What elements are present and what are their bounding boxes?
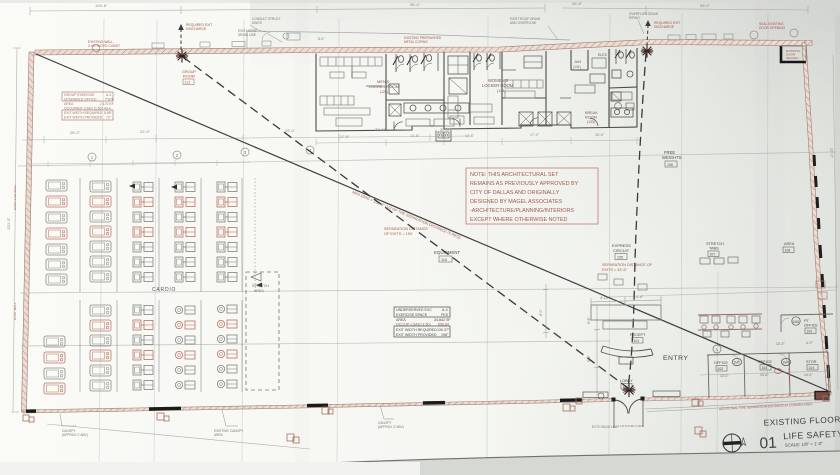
svg-text:1M6: 1M6 <box>793 320 800 324</box>
svg-text:NOTE: THIS ARCHITECTURAL SET: NOTE: THIS ARCHITECTURAL SET <box>470 172 559 178</box>
svg-text:107: 107 <box>710 253 716 257</box>
svg-text:1M2: 1M2 <box>734 361 740 365</box>
svg-text:FED: FED <box>441 313 449 317</box>
svg-text:EXIT WIDTH REQUIRED: EXIT WIDTH REQUIRED <box>396 328 437 332</box>
svg-text:SEPARATION DISTANCE: SEPARATION DISTANCE <box>384 227 428 231</box>
svg-text:17'-2": 17'-2" <box>530 133 540 137</box>
svg-text:AREA: AREA <box>64 102 74 106</box>
svg-text:EXERCISE SPACE: EXERCISE SPACE <box>396 313 428 317</box>
svg-text:DISCHARGE: DISCHARGE <box>186 27 207 31</box>
svg-text:1M4: 1M4 <box>783 361 789 365</box>
svg-text:102: 102 <box>718 367 724 371</box>
svg-text:8'-0": 8'-0" <box>318 37 324 41</box>
svg-text:101: 101 <box>634 339 640 343</box>
svg-text:EXITS = 43'-6": EXITS = 43'-6" <box>602 268 628 272</box>
svg-text:OFFICE: OFFICE <box>758 360 772 364</box>
svg-text:DWGS: DWGS <box>252 21 262 25</box>
svg-text:RECEPT: RECEPT <box>630 333 646 337</box>
svg-text:120'-0": 120'-0" <box>6 217 11 230</box>
svg-text:104'-8": 104'-8" <box>95 3 108 8</box>
svg-text:AREA: AREA <box>784 242 795 246</box>
svg-text:OCCUP. LOAD (1:50): OCCUP. LOAD (1:50) <box>396 323 431 327</box>
svg-text:(120): (120) <box>380 90 388 94</box>
svg-text:STOR: STOR <box>806 360 817 364</box>
svg-text:4'-2": 4'-2" <box>806 341 814 345</box>
svg-text:A-3: A-3 <box>442 308 448 312</box>
svg-text:139.37": 139.37" <box>437 328 450 332</box>
svg-text:26'-0": 26'-0" <box>70 130 81 135</box>
svg-text:22'-0": 22'-0" <box>140 129 151 134</box>
svg-text:25'-0": 25'-0" <box>285 128 296 133</box>
svg-text:01: 01 <box>759 435 777 453</box>
svg-text:LOCKER ROOM: LOCKER ROOM <box>482 83 514 88</box>
svg-text:13'-6": 13'-6" <box>760 373 769 377</box>
svg-text:110: 110 <box>441 258 447 262</box>
svg-text:LOCKER ROOM: LOCKER ROOM <box>369 84 399 89</box>
svg-text:TYPE: TYPE <box>105 98 115 102</box>
svg-text:(APPROX 2' ABV): (APPROX 2' ABV) <box>378 425 404 429</box>
svg-text:DISCHARGE: DISCHARGE <box>654 25 675 29</box>
svg-text:STRETCH: STRETCH <box>252 284 269 288</box>
svg-text:OF EXITS = 150': OF EXITS = 150' <box>384 232 413 236</box>
svg-text:105: 105 <box>617 255 623 259</box>
svg-text:CARDIO: CARDIO <box>152 287 176 293</box>
svg-text:100: 100 <box>623 385 629 389</box>
svg-text:EXIST WALL: EXIST WALL <box>13 302 17 320</box>
svg-text:PIPING: PIPING <box>629 16 640 20</box>
svg-text:AREA: AREA <box>254 289 264 293</box>
svg-text:104: 104 <box>809 366 815 370</box>
svg-text:OCCUPANT LOAD (1:50): OCCUPANT LOAD (1:50) <box>64 107 103 111</box>
svg-text:14'-0": 14'-0" <box>804 373 813 377</box>
svg-text:METAL COPING: METAL COPING <box>404 40 428 44</box>
svg-text:DOOR OPENING: DOOR OPENING <box>759 26 785 30</box>
svg-text:ROOM: ROOM <box>585 116 597 120</box>
svg-text:5'-2": 5'-2" <box>587 354 591 362</box>
svg-text:109: 109 <box>807 330 813 334</box>
svg-text:PT: PT <box>804 319 810 323</box>
svg-text:16'-6": 16'-6" <box>595 133 605 137</box>
svg-text:58'-0": 58'-0" <box>700 3 711 8</box>
svg-text:AND OVERFLOW: AND OVERFLOW <box>510 21 536 25</box>
svg-text:34,842 SF: 34,842 SF <box>434 318 451 322</box>
svg-text:CITY OF DALLAS AND ORIGINALLY: CITY OF DALLAS AND ORIGINALLY <box>470 190 560 196</box>
svg-text:-ARCHITECTURE/PLANNING/INTERIO: -ARCHITECTURE/PLANNING/INTERIORS <box>470 208 574 214</box>
svg-text:TABS: TABS <box>709 247 719 251</box>
svg-text:LOBBY: LOBBY <box>620 379 633 383</box>
svg-text:8.68": 8.68" <box>104 111 113 115</box>
svg-text:1-HR RATED CORR: 1-HR RATED CORR <box>618 424 644 428</box>
svg-text:9'-6": 9'-6" <box>587 316 591 324</box>
svg-text:GROUP: GROUP <box>182 70 196 74</box>
svg-text:103: 103 <box>762 366 768 370</box>
svg-text:22'-6": 22'-6" <box>375 127 386 132</box>
svg-text:OFFICE: OFFICE <box>714 361 728 365</box>
svg-text:WEIGHTS: WEIGHTS <box>662 155 682 160</box>
svg-text:UNDERSERVED EXC: UNDERSERVED EXC <box>396 308 432 312</box>
svg-text:(APPROX 2' ABV): (APPROX 2' ABV) <box>62 433 88 437</box>
svg-text:ELEC: ELEC <box>598 53 608 57</box>
svg-text:108: 108 <box>785 249 791 253</box>
svg-text:EXCEPT WHERE OTHERWISE NOTED: EXCEPT WHERE OTHERWISE NOTED <box>470 217 568 223</box>
svg-text:EXIT WIDTH PROVIDED: EXIT WIDTH PROVIDED <box>64 116 103 120</box>
svg-text:SEPARATION DISTANCE OF: SEPARATION DISTANCE OF <box>602 263 653 267</box>
svg-text:EXIT WIDTH REQUIRED: EXIT WIDTH REQUIRED <box>64 111 103 115</box>
svg-text:20'-0": 20'-0" <box>829 148 835 159</box>
svg-text:AREA: AREA <box>214 433 224 437</box>
svg-text:26'-8": 26'-8" <box>572 1 583 6</box>
svg-text:ENTRY: ENTRY <box>663 355 688 362</box>
svg-text:96'-4": 96'-4" <box>410 2 421 7</box>
svg-text:UPGRADED OFFICE: UPGRADED OFFICE <box>64 98 97 102</box>
svg-text:1'-4": 1'-4" <box>636 295 644 299</box>
svg-text:20'-0": 20'-0" <box>440 127 451 132</box>
svg-text:AREA: AREA <box>396 318 406 322</box>
svg-text:72": 72" <box>106 116 112 120</box>
svg-text:10'-2": 10'-2" <box>776 342 785 346</box>
svg-text:43.4: 43.4 <box>104 107 111 111</box>
svg-text:DESIGNED BY MAGEL ASSOCIATES: DESIGNED BY MAGEL ASSOCIATES <box>470 199 563 205</box>
svg-text:696.84: 696.84 <box>438 323 449 327</box>
svg-text:REMAINS AS PREVIOUSLY APPROVED: REMAINS AS PREVIOUSLY APPROVED BY <box>470 181 579 187</box>
svg-text:6'-0": 6'-0" <box>539 308 543 316</box>
svg-text:106: 106 <box>667 163 673 167</box>
svg-text:4'-10": 4'-10" <box>600 296 610 300</box>
svg-text:ROOM: ROOM <box>183 75 195 79</box>
svg-text:EXIST 2-HR WALL: EXIST 2-HR WALL <box>13 184 17 210</box>
svg-text:(131): (131) <box>573 65 581 69</box>
svg-text:OFFICE: OFFICE <box>804 324 818 328</box>
svg-text:A-3: A-3 <box>106 93 111 97</box>
svg-text:13'-2": 13'-2" <box>720 374 729 378</box>
svg-text:EXIT WIDTH PROVIDED: EXIT WIDTH PROVIDED <box>396 333 437 337</box>
svg-text:113: 113 <box>185 81 191 85</box>
svg-text:EXTG BLDG LINE: EXTG BLDG LINE <box>592 425 618 429</box>
svg-text:14'-6": 14'-6" <box>410 134 420 138</box>
svg-text:GROUP EXERCISE: GROUP EXERCISE <box>64 93 95 97</box>
svg-text:198": 198" <box>441 333 449 337</box>
svg-text:2,170 SF: 2,170 SF <box>100 102 114 106</box>
svg-text:SEALED: SEALED <box>786 56 799 60</box>
svg-text:JAN: JAN <box>574 60 581 64</box>
svg-text:(133): (133) <box>587 120 595 124</box>
svg-text:STRETCH: STRETCH <box>706 242 724 246</box>
svg-text:BREAK: BREAK <box>585 111 598 115</box>
svg-text:CIRCUIT: CIRCUIT <box>613 248 630 253</box>
svg-text:(124): (124) <box>497 89 505 93</box>
